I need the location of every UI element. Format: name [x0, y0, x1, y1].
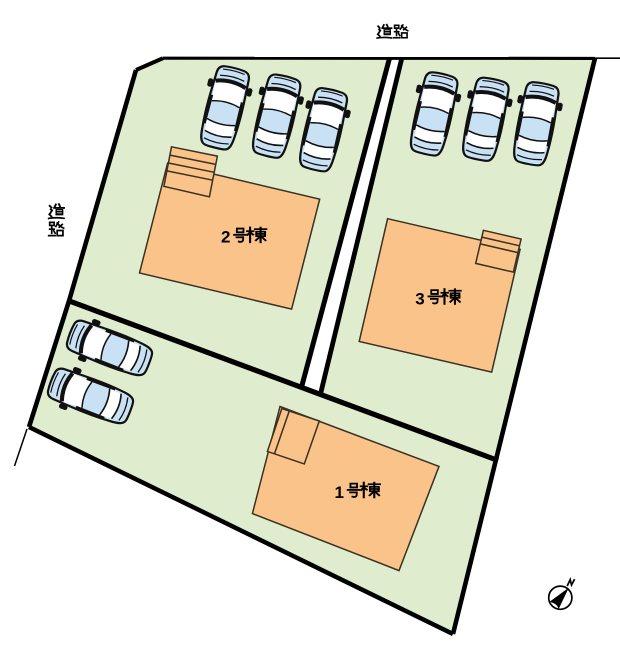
svg-text:3: 3 — [415, 289, 424, 308]
svg-text:2: 2 — [221, 228, 230, 247]
svg-text:1: 1 — [335, 483, 344, 502]
